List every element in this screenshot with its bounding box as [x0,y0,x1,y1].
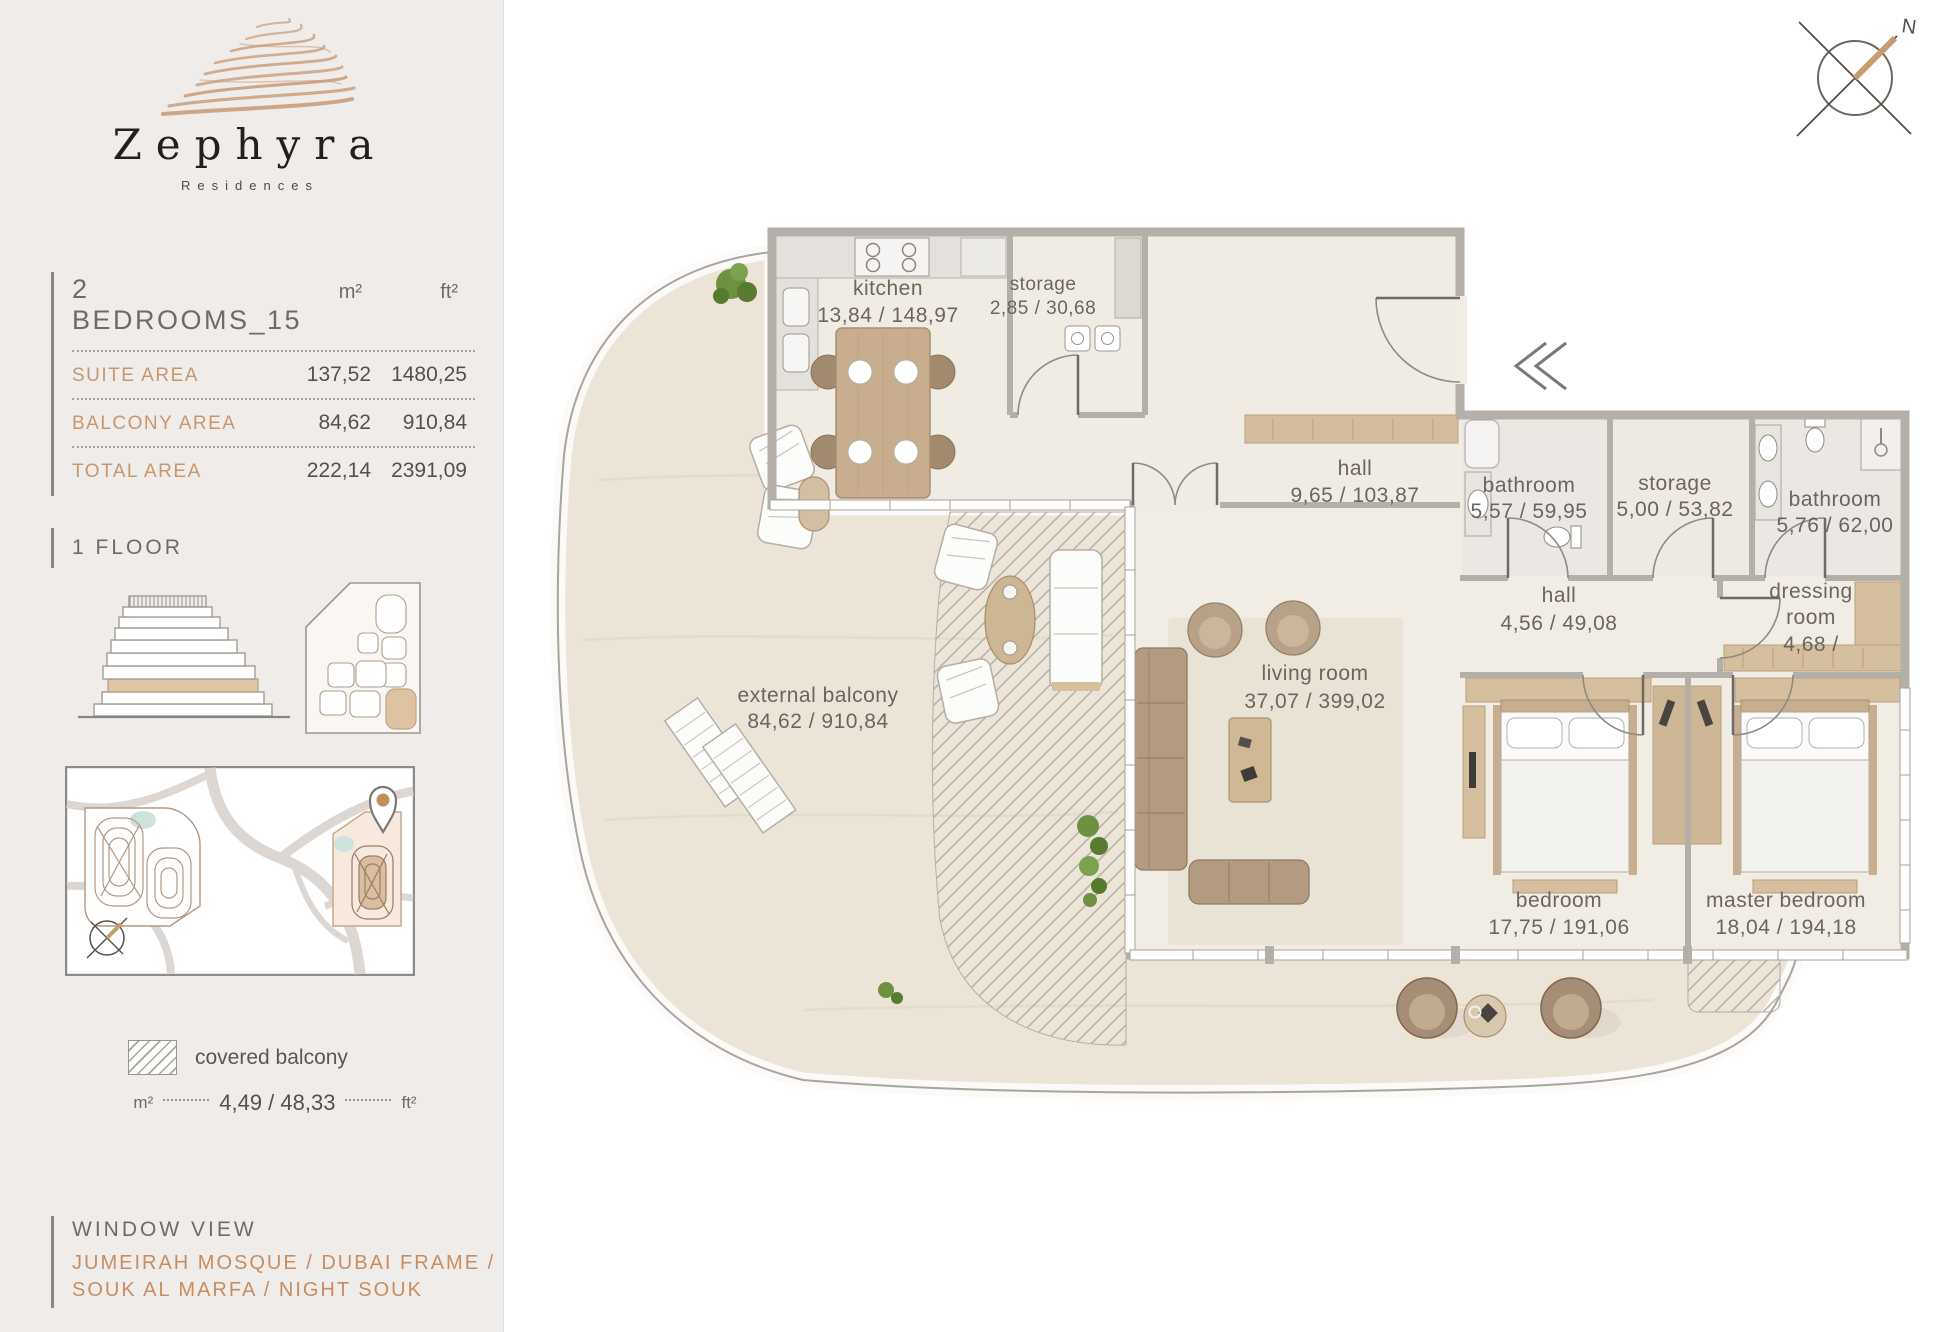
window-view-line: JUMEIRAH MOSQUE / DUBAI FRAME / [72,1250,495,1277]
room-area: 4,68 / [1783,633,1839,656]
room-label: room [1786,606,1836,629]
rattan-chair [1541,978,1601,1038]
wardrobe [1735,678,1900,702]
entry-opening [1453,296,1467,384]
floor-label: 1 FLOOR [72,536,183,559]
bed [1733,700,1877,893]
hall-closet [1245,415,1458,443]
room-label: master bedroom [1706,889,1866,912]
unit-locator-diagram [298,575,428,740]
sofa [1135,648,1187,870]
row-ft2: 2391,09 [379,459,475,483]
covered-balcony-legend: covered balcony [128,1040,348,1075]
sofa-small [1189,860,1309,904]
unit-highlight [386,689,416,729]
pillow [1569,718,1624,748]
dotted-leader [163,1098,209,1101]
room-label: living room [1261,662,1368,685]
pillow [1507,718,1562,748]
brand-name: Zephyra [40,120,460,169]
toilet-icon [1806,428,1824,452]
wardrobe [1466,678,1651,702]
window-view-title: WINDOW VIEW [72,1218,495,1242]
room-label: hall [1542,584,1577,607]
room-area: 5,76 / 62,00 [1777,514,1894,537]
room-area: 2,85 / 30,68 [990,298,1096,319]
unit-ft2-header: ft² [380,281,476,304]
sink-icon [783,334,809,372]
table-row: SUITE AREA 137,52 1480,25 [72,352,475,400]
sink-icon [1759,435,1777,461]
room-label: hall [1338,457,1373,480]
row-ft2: 1480,25 [379,363,475,387]
room-area: 9,65 / 103,87 [1290,484,1419,507]
area-table-header: 2 BEDROOMS_15 m² ft² [72,274,475,352]
room-label: storage [1638,472,1712,495]
armchair [1188,603,1242,657]
location-map [65,766,415,976]
legend-label: covered balcony [195,1046,348,1070]
building-elevation-diagram [72,580,297,730]
floor-section: 1 FLOOR [51,528,183,568]
armchair [1266,601,1320,655]
north-label: N [1900,15,1917,39]
unit-title: 2 BEDROOMS_15 [72,274,302,336]
coffee-table [1229,718,1271,802]
sink-icon [1759,481,1777,507]
row-m2: 137,52 [301,363,379,387]
highlighted-floor [108,679,258,692]
floor-plan: N kitchen 13,84 / 148,97 storage 2,85 / … [503,0,1940,1332]
outdoor-chair [936,657,1001,725]
room-label: external balcony [738,684,899,707]
outdoor-round-table [1464,995,1506,1037]
map-neighbor-buildings [85,808,200,926]
row-label: SUITE AREA [72,365,301,387]
room-area: 5,57 / 59,95 [1471,500,1588,523]
room-area: 18,04 / 194,18 [1715,916,1856,939]
window-view-line: SOUK AL MARFA / NIGHT SOUK [72,1277,495,1304]
room-label: bathroom [1483,474,1576,497]
room-area: 4,56 / 49,08 [1501,612,1618,635]
room-label: storage [1010,274,1077,295]
fridge-icon [961,238,1006,276]
area-table: 2 BEDROOMS_15 m² ft² SUITE AREA 137,52 1… [51,272,475,496]
room-label: dressing [1769,580,1852,603]
bathtub-icon [1465,420,1499,468]
unit-m2-header: m² [302,281,380,304]
outdoor-oval-table [985,576,1035,664]
legend-value: 4,49 / 48,33 [219,1090,335,1116]
room-label: bathroom [1789,488,1882,511]
entry-chevron-icon [1516,343,1566,389]
row-label: BALCONY AREA [72,413,301,435]
table-row: TOTAL AREA 222,14 2391,09 [72,448,475,494]
room-area: 17,75 / 191,06 [1488,916,1629,939]
table-row: BALCONY AREA 84,62 910,84 [72,400,475,448]
outdoor-bench [1050,550,1102,691]
window-view-section: WINDOW VIEW JUMEIRAH MOSQUE / DUBAI FRAM… [51,1216,495,1308]
room-area: 37,07 / 399,02 [1244,690,1385,713]
sink-icon [783,288,809,326]
info-sidebar: Zephyra Residences 2 BEDROOMS_15 m² ft² … [0,0,504,1332]
pillow [1809,718,1864,748]
room-label: bedroom [1516,889,1602,912]
legend-m2-unit: m² [133,1093,153,1113]
stove-icon [855,238,929,276]
row-m2: 84,62 [301,411,379,435]
room-area: 5,00 / 53,82 [1617,498,1734,521]
brand-subtitle: Residences [40,178,460,193]
covered-balcony-values: m² 4,49 / 48,33 ft² [100,1090,450,1116]
living-room-furniture [1135,601,1403,945]
compass-icon: N [1797,15,1918,136]
row-ft2: 910,84 [379,411,475,435]
wardrobe [1463,706,1485,838]
row-label: TOTAL AREA [72,461,301,483]
dotted-leader [345,1098,391,1101]
row-m2: 222,14 [301,459,379,483]
room-area: 84,62 / 910,84 [747,710,888,733]
room-label: kitchen [853,277,923,300]
rattan-chair [1397,978,1457,1038]
room-area: 13,84 / 148,97 [817,304,958,327]
hatch-swatch-icon [128,1040,177,1075]
brand-logo-icon [145,14,365,124]
legend-ft2-unit: ft² [401,1093,416,1113]
pillow [1747,718,1802,748]
